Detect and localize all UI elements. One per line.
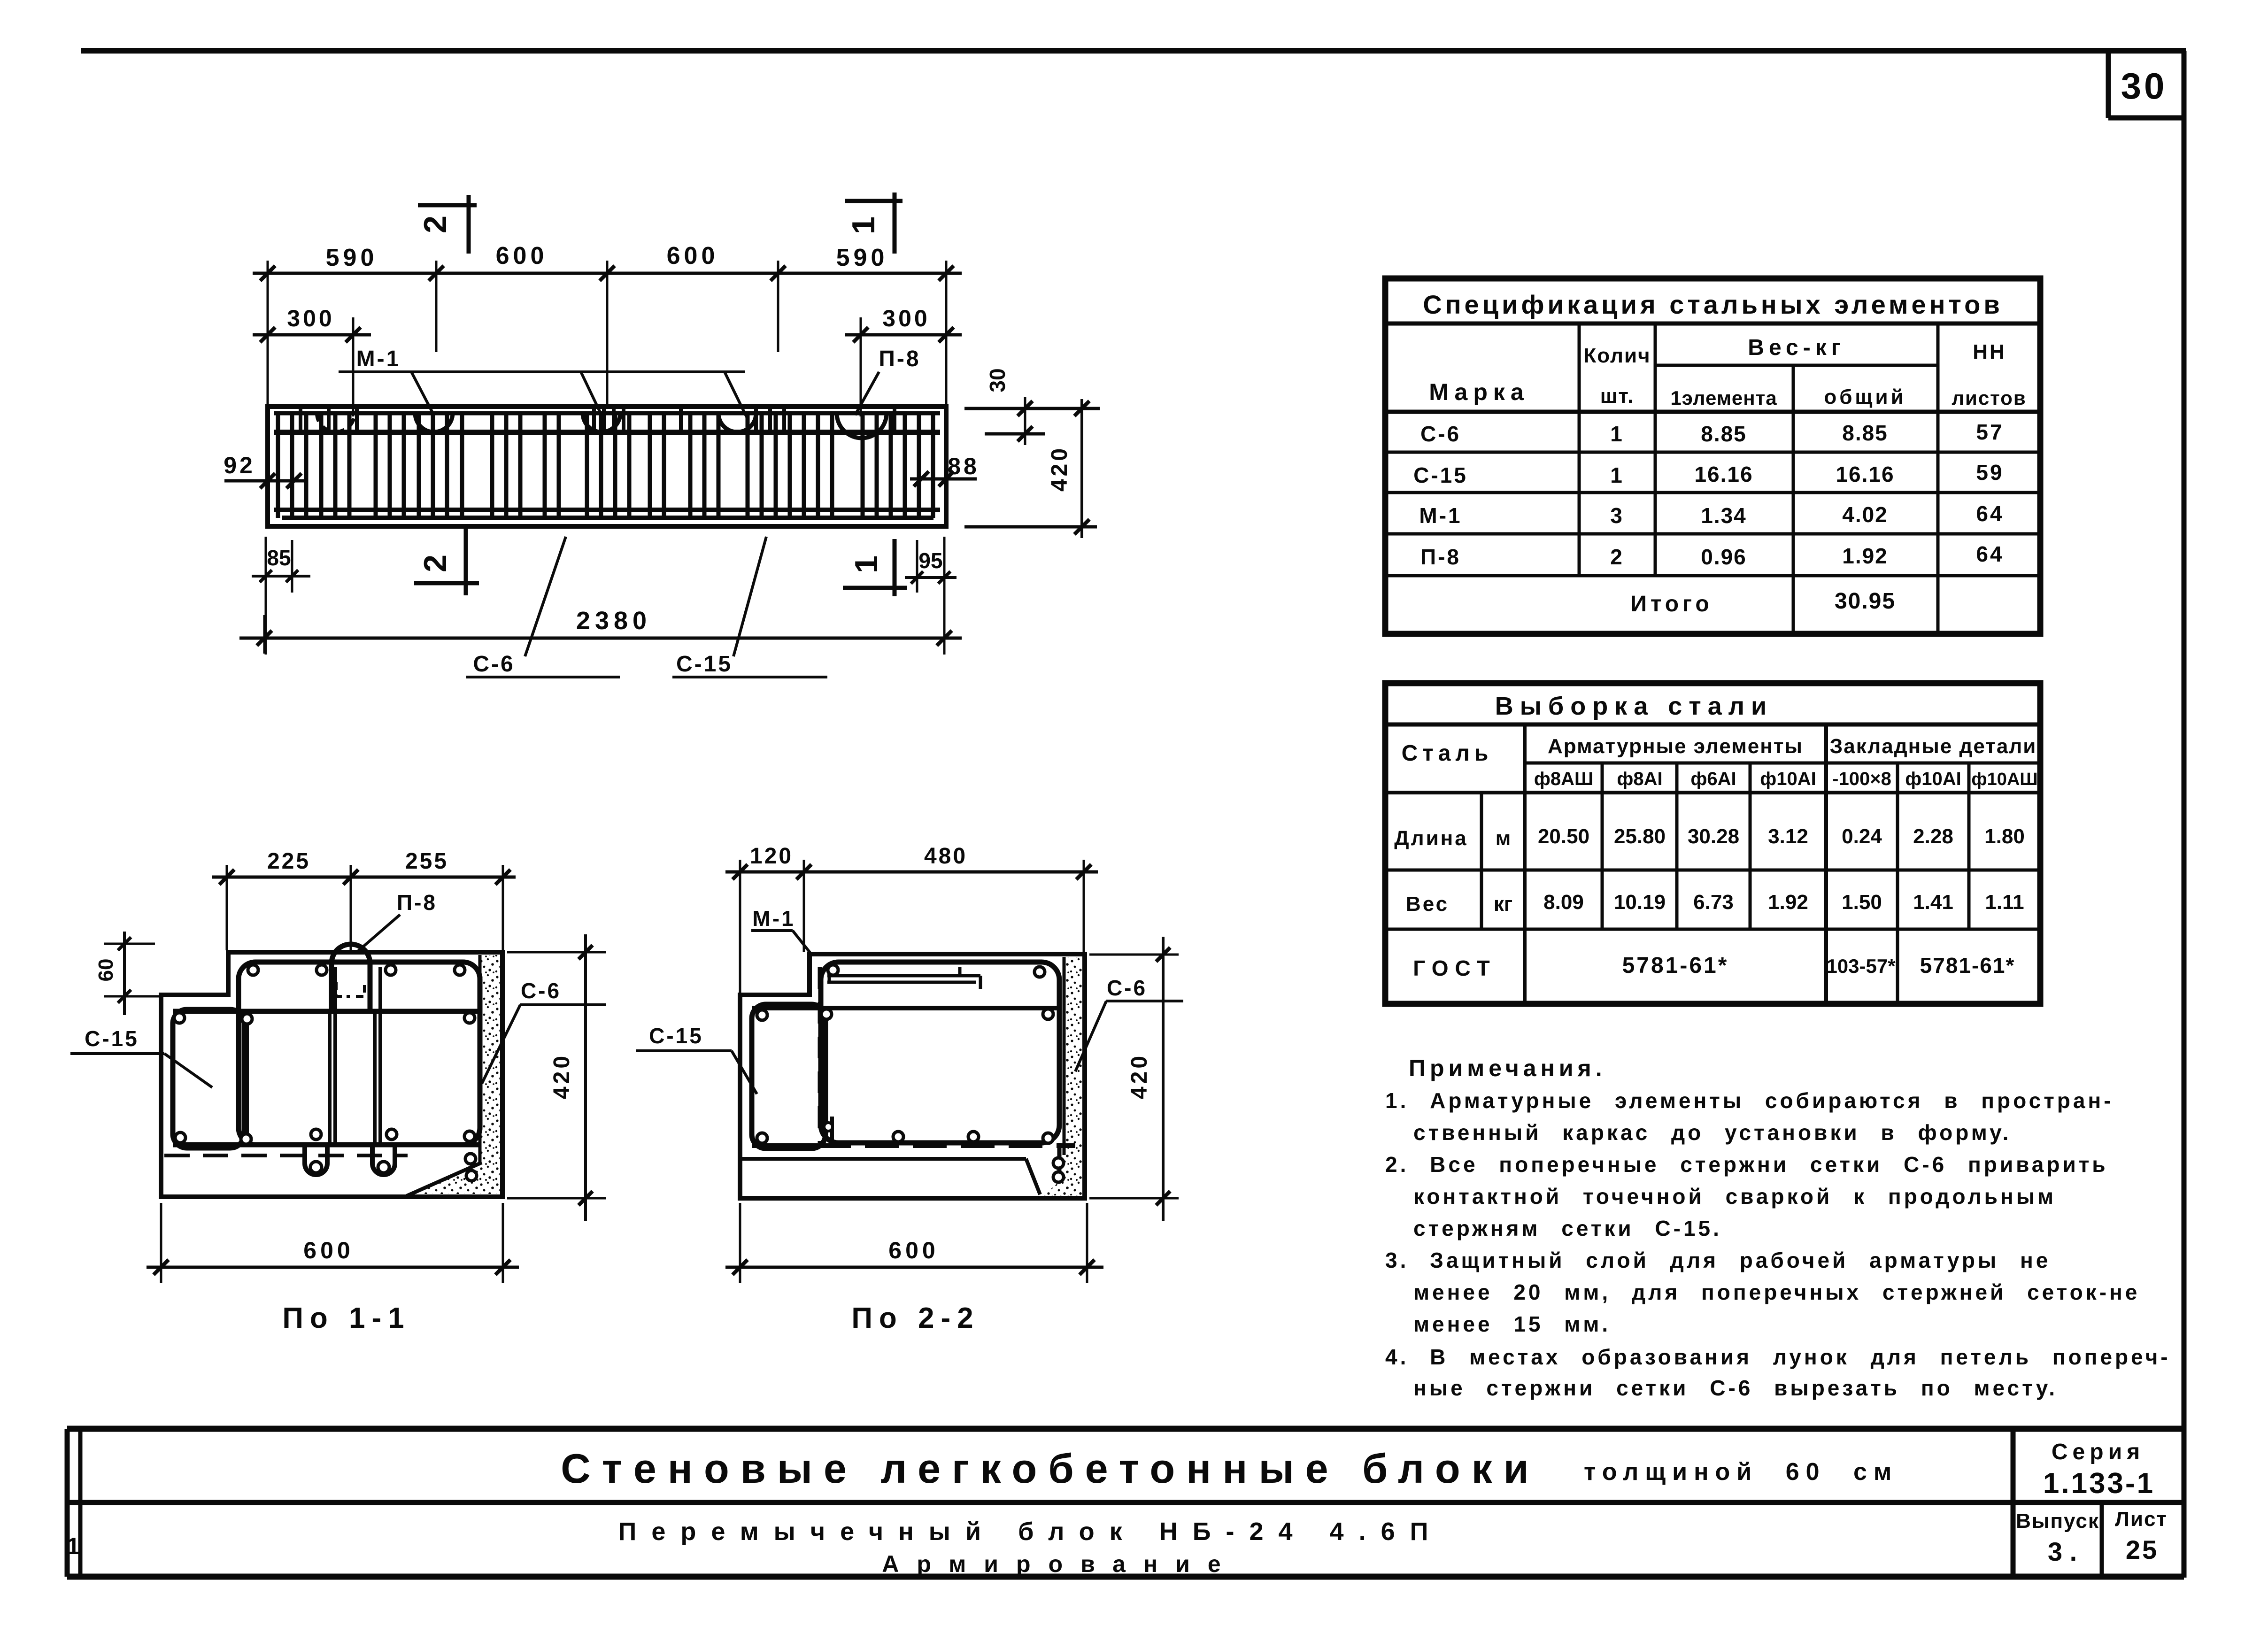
svg-text:1: 1 bbox=[1610, 422, 1622, 446]
svg-text:0.24: 0.24 bbox=[1842, 825, 1882, 848]
svg-text:420: 420 bbox=[1127, 1053, 1152, 1099]
svg-text:Колич: Колич bbox=[1583, 344, 1651, 367]
svg-text:Длина: Длина bbox=[1394, 827, 1468, 850]
svg-text:1.80: 1.80 bbox=[1984, 825, 2025, 848]
svg-text:0.96: 0.96 bbox=[1701, 545, 1747, 569]
svg-text:С-6: С-6 bbox=[1107, 976, 1147, 1000]
svg-text:600: 600 bbox=[667, 242, 719, 270]
svg-text:1: 1 bbox=[846, 216, 881, 234]
svg-text:590: 590 bbox=[836, 244, 888, 271]
svg-text:2.28: 2.28 bbox=[1913, 825, 1953, 848]
svg-text:8.09: 8.09 bbox=[1543, 891, 1584, 914]
svg-text:2. Все поперечные стержни сетк: 2. Все поперечные стержни сетки С-6 прив… bbox=[1385, 1152, 2108, 1177]
svg-text:1.50: 1.50 bbox=[1842, 891, 1882, 914]
svg-text:1.92: 1.92 bbox=[1842, 544, 1888, 568]
svg-text:Итого: Итого bbox=[1630, 592, 1713, 616]
svg-text:Лист: Лист bbox=[2115, 1508, 2168, 1531]
svg-text:1.92: 1.92 bbox=[1768, 891, 1808, 914]
svg-text:-100×8: -100×8 bbox=[1832, 769, 1891, 789]
svg-text:255: 255 bbox=[405, 849, 448, 874]
svg-text:6.73: 6.73 bbox=[1693, 891, 1734, 914]
svg-text:3 .: 3 . bbox=[2048, 1537, 2077, 1566]
svg-text:ф10АШ: ф10АШ bbox=[1971, 770, 2037, 789]
svg-text:С-15: С-15 bbox=[649, 1024, 703, 1048]
svg-text:85: 85 bbox=[267, 546, 291, 570]
svg-text:контактной точечной сваркой к: контактной точечной сваркой к продольным bbox=[1413, 1184, 2056, 1209]
svg-text:225: 225 bbox=[267, 849, 310, 874]
svg-text:Вес: Вес bbox=[1406, 893, 1449, 916]
svg-text:ф6АІ: ф6АІ bbox=[1690, 769, 1736, 789]
svg-text:420: 420 bbox=[549, 1053, 574, 1099]
svg-text:600: 600 bbox=[888, 1237, 939, 1263]
svg-text:стержням сетки С-15.: стержням сетки С-15. bbox=[1413, 1216, 1722, 1240]
svg-text:П-8: П-8 bbox=[397, 890, 437, 915]
svg-text:м: м bbox=[1496, 827, 1511, 850]
svg-text:Выпуск: Выпуск bbox=[2016, 1510, 2099, 1533]
svg-text:Примечания.: Примечания. bbox=[1409, 1055, 1606, 1081]
svg-text:3.12: 3.12 bbox=[1768, 825, 1808, 848]
svg-text:5781-61*: 5781-61* bbox=[1622, 953, 1729, 978]
svg-text:88: 88 bbox=[948, 453, 980, 479]
svg-text:По 2-2: По 2-2 bbox=[851, 1302, 980, 1334]
svg-text:2: 2 bbox=[417, 555, 453, 572]
svg-text:60: 60 bbox=[94, 959, 117, 982]
svg-text:30: 30 bbox=[2121, 65, 2168, 107]
svg-text:С-6: С-6 bbox=[1420, 422, 1461, 446]
svg-text:1: 1 bbox=[67, 1533, 80, 1559]
svg-text:2380: 2380 bbox=[576, 607, 651, 635]
svg-text:Спецификация стальных элементо: Спецификация стальных элементов bbox=[1423, 290, 2003, 319]
svg-text:25: 25 bbox=[2126, 1535, 2159, 1564]
svg-text:25.80: 25.80 bbox=[1614, 825, 1666, 848]
svg-text:По 1-1: По 1-1 bbox=[282, 1302, 410, 1334]
svg-text:4. В местах образования лунок: 4. В местах образования лунок для петель… bbox=[1385, 1345, 2171, 1369]
svg-text:3: 3 bbox=[1610, 503, 1622, 528]
svg-text:10.19: 10.19 bbox=[1614, 891, 1666, 914]
svg-text:М-1: М-1 bbox=[1419, 503, 1462, 528]
svg-text:1.41: 1.41 bbox=[1913, 891, 1953, 914]
svg-text:92: 92 bbox=[224, 452, 255, 478]
svg-text:1.133-1: 1.133-1 bbox=[2043, 1467, 2155, 1500]
svg-text:С-15: С-15 bbox=[85, 1026, 139, 1051]
svg-text:1элемента: 1элемента bbox=[1670, 387, 1777, 409]
svg-text:С-15: С-15 bbox=[676, 652, 733, 677]
svg-text:ф10АІ: ф10АІ bbox=[1760, 769, 1816, 789]
svg-text:57: 57 bbox=[1976, 420, 2004, 444]
svg-text:Армирование: Армирование bbox=[882, 1551, 1238, 1577]
svg-text:59: 59 bbox=[1976, 460, 2004, 485]
svg-text:Вес-кг: Вес-кг bbox=[1748, 335, 1845, 360]
svg-text:Серия: Серия bbox=[2052, 1440, 2145, 1464]
svg-text:1.34: 1.34 bbox=[1701, 503, 1747, 528]
svg-text:3. Защитный слой для рабочей а: 3. Защитный слой для рабочей арматуры не bbox=[1385, 1248, 2051, 1272]
svg-text:ф8АШ: ф8АШ bbox=[1534, 769, 1593, 789]
svg-text:НН: НН bbox=[1973, 340, 2006, 363]
svg-text:1: 1 bbox=[1610, 463, 1622, 487]
svg-text:Выборка стали: Выборка стали bbox=[1495, 692, 1774, 720]
svg-text:103-57*: 103-57* bbox=[1826, 955, 1896, 977]
svg-text:1: 1 bbox=[849, 555, 884, 573]
svg-text:1. Арматурные элементы собираю: 1. Арматурные элементы собираются в прос… bbox=[1385, 1088, 2114, 1113]
svg-text:300: 300 bbox=[287, 305, 334, 331]
svg-text:Арматурные элементы: Арматурные элементы bbox=[1548, 735, 1803, 758]
svg-text:менее 20 мм, для поперечных ст: менее 20 мм, для поперечных стержней сет… bbox=[1413, 1280, 2140, 1304]
svg-text:М-1: М-1 bbox=[752, 906, 795, 931]
svg-text:менее 15 мм.: менее 15 мм. bbox=[1413, 1312, 1611, 1336]
svg-text:95: 95 bbox=[918, 548, 942, 573]
svg-text:480: 480 bbox=[924, 844, 967, 869]
svg-text:П-8: П-8 bbox=[1420, 545, 1461, 569]
svg-text:Стеновые легкобетонные блоки: Стеновые легкобетонные блоки bbox=[561, 1445, 1540, 1492]
svg-text:Марка: Марка bbox=[1429, 379, 1529, 405]
svg-text:5781-61*: 5781-61* bbox=[1920, 953, 2015, 978]
svg-text:420: 420 bbox=[1047, 446, 1072, 492]
svg-text:ные стержни сетки С-6 вырезать: ные стержни сетки С-6 вырезать по месту. bbox=[1413, 1376, 2058, 1400]
svg-text:600: 600 bbox=[496, 242, 548, 270]
svg-text:1.11: 1.11 bbox=[1985, 891, 2024, 914]
svg-text:Перемычечный блок НБ-24 4.6П: Перемычечный блок НБ-24 4.6П bbox=[618, 1517, 1443, 1546]
svg-text:шт.: шт. bbox=[1600, 385, 1635, 408]
svg-text:С-6: С-6 bbox=[473, 652, 515, 677]
svg-text:300: 300 bbox=[882, 305, 930, 331]
svg-text:600: 600 bbox=[303, 1237, 354, 1263]
svg-text:20.50: 20.50 bbox=[1538, 825, 1589, 848]
svg-text:4.02: 4.02 bbox=[1842, 502, 1888, 527]
svg-text:16.16: 16.16 bbox=[1694, 462, 1753, 486]
svg-text:М-1: М-1 bbox=[356, 347, 401, 371]
svg-text:толщиной 60 см: толщиной 60 см bbox=[1584, 1458, 1898, 1486]
svg-text:листов: листов bbox=[1952, 387, 2026, 409]
svg-text:ф8АІ: ф8АІ bbox=[1617, 769, 1662, 789]
svg-text:ственный каркас до установки в: ственный каркас до установки в форму. bbox=[1413, 1120, 2011, 1145]
svg-text:30.28: 30.28 bbox=[1688, 825, 1739, 848]
svg-text:Закладные детали: Закладные детали bbox=[1830, 735, 2037, 758]
svg-text:кг: кг bbox=[1494, 893, 1512, 916]
svg-text:8.85: 8.85 bbox=[1842, 421, 1888, 445]
svg-text:С-6: С-6 bbox=[521, 978, 561, 1003]
svg-text:30: 30 bbox=[985, 368, 1010, 392]
svg-text:общий: общий bbox=[1824, 385, 1906, 408]
svg-text:590: 590 bbox=[326, 244, 378, 271]
svg-text:2: 2 bbox=[1610, 545, 1622, 569]
svg-text:П-8: П-8 bbox=[879, 347, 920, 371]
svg-text:8.85: 8.85 bbox=[1701, 422, 1747, 446]
svg-text:16.16: 16.16 bbox=[1836, 462, 1894, 486]
svg-text:64: 64 bbox=[1976, 542, 2004, 566]
svg-text:С-15: С-15 bbox=[1413, 463, 1468, 487]
svg-text:ГОСТ: ГОСТ bbox=[1413, 956, 1496, 980]
svg-text:ф10АІ: ф10АІ bbox=[1905, 769, 1961, 789]
svg-text:Сталь: Сталь bbox=[1402, 741, 1493, 766]
svg-text:30.95: 30.95 bbox=[1835, 589, 1896, 614]
svg-text:120: 120 bbox=[750, 844, 793, 869]
svg-text:64: 64 bbox=[1976, 501, 2004, 526]
svg-text:2: 2 bbox=[417, 216, 453, 233]
